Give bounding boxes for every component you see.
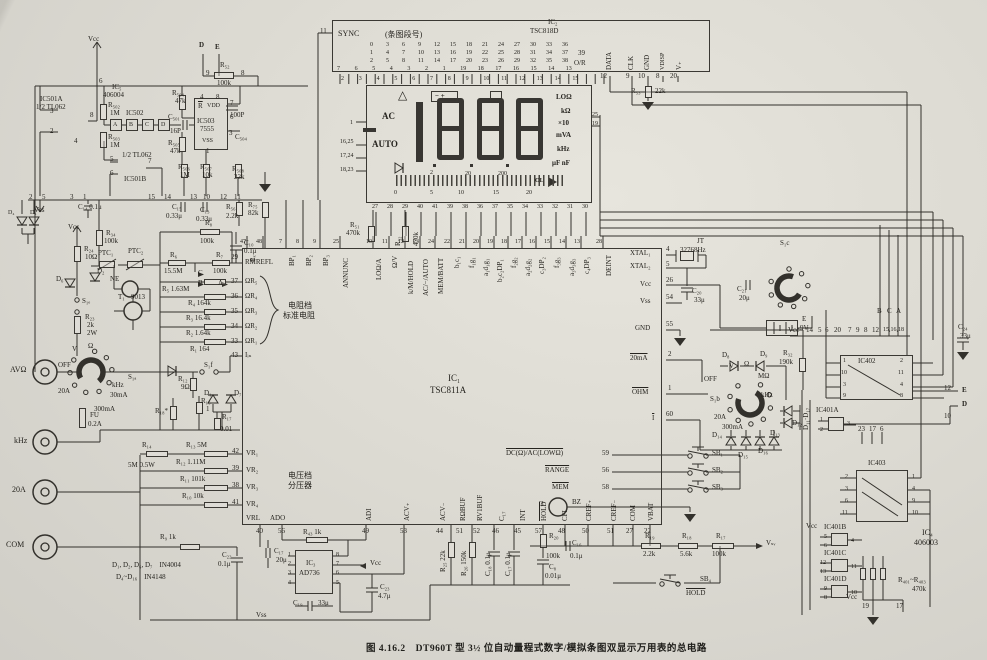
lcd-digit-1 [416, 102, 423, 162]
schematic-page: 4748789251011122324222120191817161514132… [0, 0, 987, 660]
lcd-decimal-point [506, 164, 509, 167]
lcd-bargraph-ticks [396, 175, 566, 186]
lcd-battery-polarity: − + [435, 93, 445, 100]
lcd-content-layer: △− + [0, 0, 987, 660]
lcd-digit-8-midbar [521, 126, 538, 131]
lcd-decimal-point [470, 164, 473, 167]
lcd-warning-triangle-icon: △ [398, 89, 407, 101]
lcd-digit-8-midbar [442, 126, 459, 131]
lcd-decimal-point [433, 164, 436, 167]
figure-caption: 图 4.16.2 DT960T 型 3½ 位自动量程式数字/模拟条图双显示万用表… [366, 640, 707, 654]
lcd-digit-8-midbar [482, 126, 499, 131]
lcd-square-icon [490, 91, 502, 101]
lcd-minus-sign [363, 128, 376, 132]
